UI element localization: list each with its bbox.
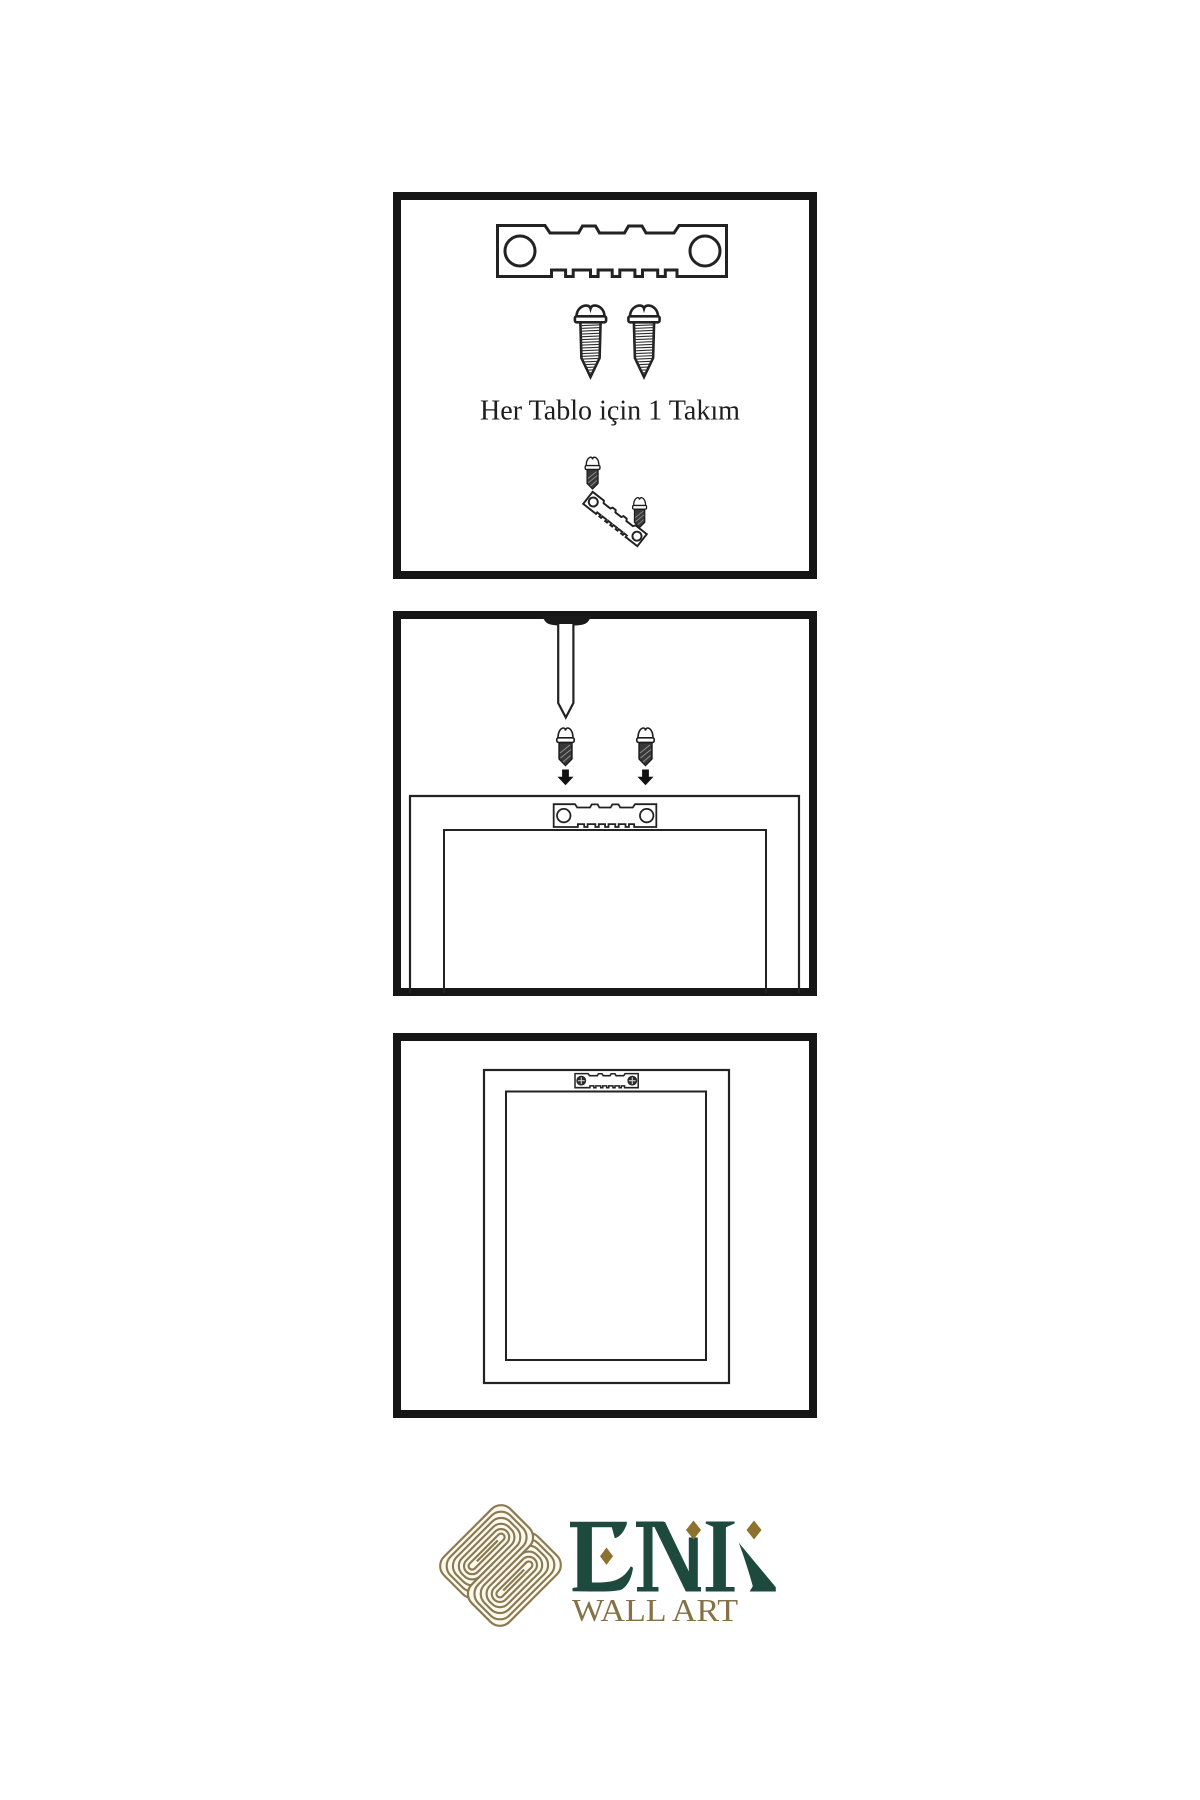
- svg-text:WALL ART: WALL ART: [572, 1592, 738, 1628]
- svg-text:Her Tablo için 1 Takım: Her Tablo için 1 Takım: [480, 395, 740, 427]
